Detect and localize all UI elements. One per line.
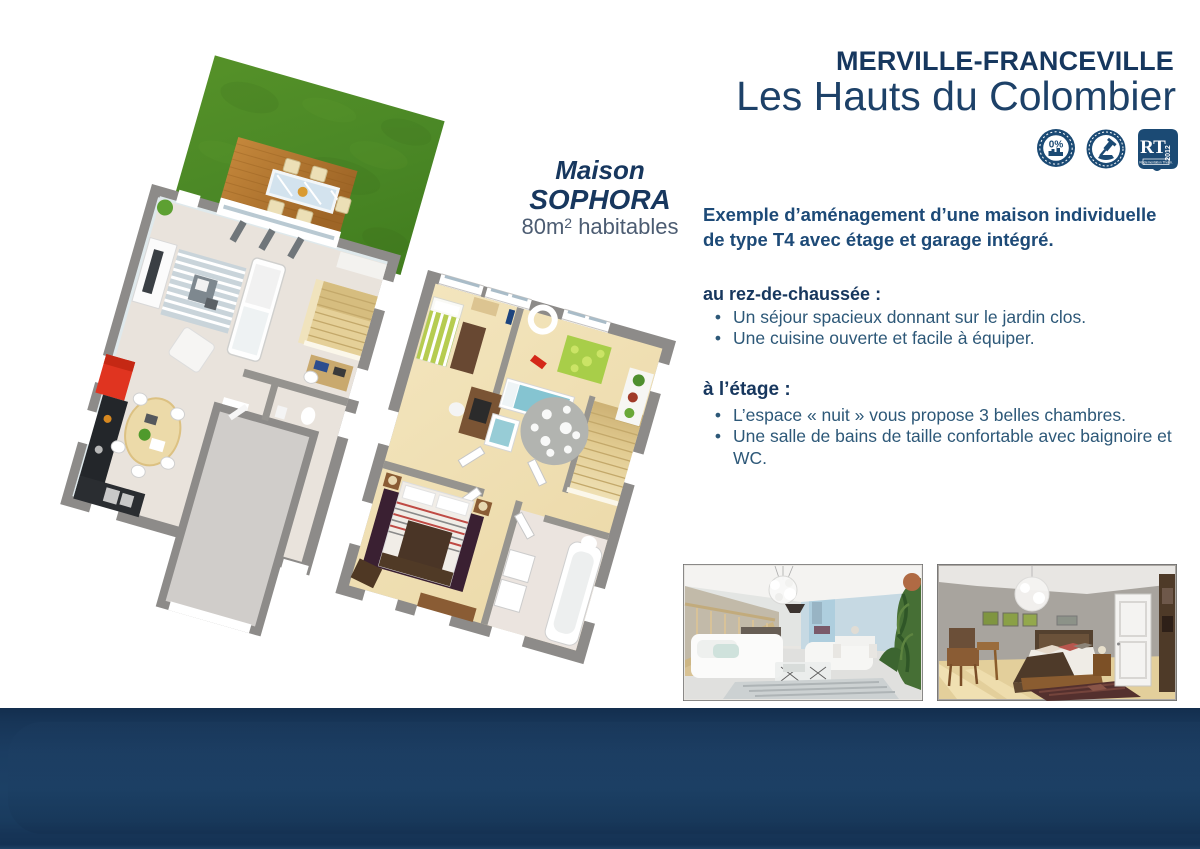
svg-text:Réglementation Therm.: Réglementation Therm.: [1139, 160, 1172, 164]
svg-text:RT: RT: [1140, 137, 1166, 158]
svg-text:2012: 2012: [1165, 145, 1172, 161]
svg-text:0%: 0%: [1049, 140, 1064, 151]
